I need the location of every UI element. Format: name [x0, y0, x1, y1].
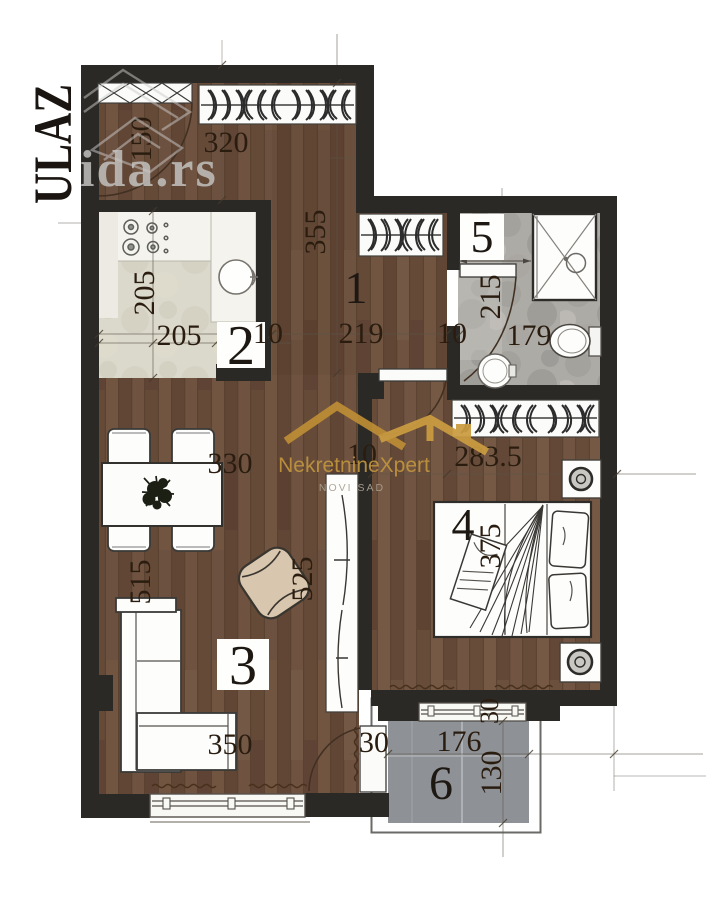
svg-text:10: 10 [437, 317, 467, 350]
svg-text:130: 130 [475, 751, 508, 796]
svg-text:30: 30 [475, 698, 504, 724]
svg-text:6: 6 [429, 757, 453, 810]
svg-text:NekretnineXpert: NekretnineXpert [278, 454, 430, 477]
svg-text:ida.rs: ida.rs [80, 141, 218, 198]
svg-text:5: 5 [471, 211, 494, 262]
svg-text:330: 330 [208, 447, 253, 480]
svg-text:375: 375 [474, 524, 507, 569]
svg-text:3: 3 [229, 635, 257, 697]
svg-text:205: 205 [157, 319, 202, 352]
svg-text:515: 515 [124, 560, 157, 605]
svg-text:283.5: 283.5 [454, 440, 522, 473]
svg-text:219: 219 [339, 317, 384, 350]
svg-text:355: 355 [299, 210, 332, 255]
svg-text:2: 2 [227, 315, 255, 377]
svg-text:350: 350 [208, 728, 253, 761]
svg-text:ULAZ: ULAZ [23, 84, 83, 204]
svg-text:525: 525 [286, 557, 319, 602]
svg-text:30: 30 [359, 726, 389, 759]
svg-text:205: 205 [128, 271, 161, 316]
svg-text:179: 179 [507, 319, 552, 352]
svg-text:1: 1 [345, 262, 368, 313]
svg-text:4: 4 [452, 499, 475, 550]
svg-text:215: 215 [474, 275, 507, 320]
svg-text:10: 10 [253, 317, 283, 350]
svg-text:NOVI SAD: NOVI SAD [319, 482, 385, 494]
